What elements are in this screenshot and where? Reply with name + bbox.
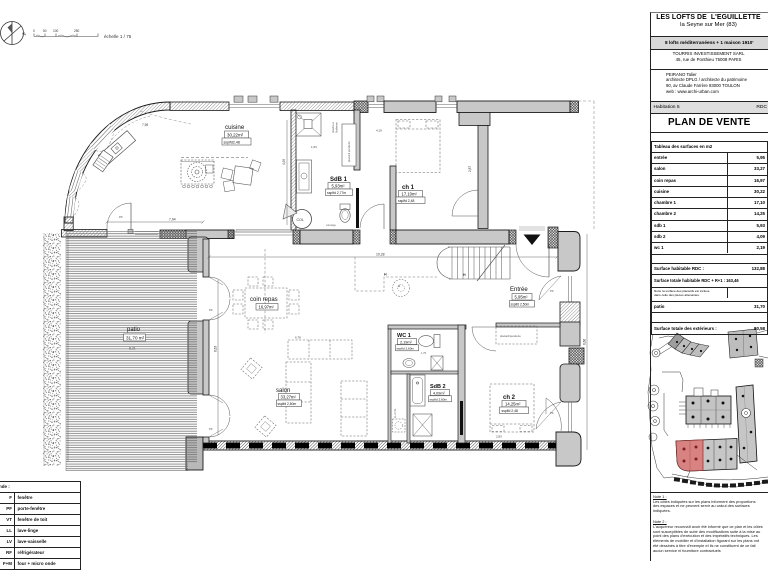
svg-text:100: 100 [53,29,59,33]
svg-text:ssplfd 2,48: ssplfd 2,48 [398,199,415,203]
svg-text:PF: PF [550,289,554,293]
svg-text:14,25m²: 14,25m² [505,402,521,407]
svg-text:H: H [463,273,466,277]
svg-text:PF: PF [550,411,554,415]
svg-text:N: N [22,31,27,37]
svg-text:31,70 m²: 31,70 m² [126,336,145,341]
svg-text:patio: patio [127,327,141,333]
svg-text:cuisine: cuisine [225,124,245,131]
svg-text:LL et SL: LL et SL [393,408,397,418]
svg-text:coin repas: coin repas [250,297,278,303]
svg-text:COL: COL [297,218,304,222]
svg-text:échelle 1 / 75: échelle 1 / 75 [104,34,132,39]
svg-text:carrelage: carrelage [326,224,337,227]
svg-text:ssplfd 2,50m: ssplfd 2,50m [511,303,530,307]
svg-text:0: 0 [33,29,35,33]
svg-text:5,95m²: 5,95m² [515,295,529,300]
svg-text:ssplfd2,48: ssplfd2,48 [224,141,240,145]
svg-text:30,22m²: 30,22m² [227,133,244,138]
svg-text:H: H [384,273,387,277]
svg-text:ssplfd 2,60m: ssplfd 2,60m [278,402,297,406]
svg-text:ssplfd 2,77m: ssplfd 2,77m [327,191,346,195]
svg-text:PF: PF [209,427,213,431]
svg-text:4,19: 4,19 [376,129,382,133]
svg-text:salon: salon [276,388,290,394]
svg-text:ch 1: ch 1 [402,185,415,191]
svg-text:douche à: douche à [331,122,335,133]
svg-text:placard penderie: placard penderie [347,141,351,162]
svg-text:PF: PF [119,215,123,219]
svg-text:7,94: 7,94 [169,218,176,222]
svg-text:SdB 1: SdB 1 [330,177,348,183]
svg-text:6,78: 6,78 [295,336,301,340]
svg-text:ssplfd 2,48: ssplfd 2,48 [502,409,519,413]
svg-text:ssplfd 2,60m: ssplfd 2,60m [397,346,415,350]
svg-text:2,83: 2,83 [496,435,502,439]
svg-text:8,66: 8,66 [583,339,587,345]
svg-text:PF: PF [209,308,213,312]
svg-text:2,87: 2,87 [468,166,472,172]
svg-text:l'italienne: l'italienne [335,122,339,133]
svg-text:33,27m²: 33,27m² [281,395,297,400]
svg-text:SdB 2: SdB 2 [430,384,446,390]
svg-text:8,63: 8,63 [214,346,218,352]
svg-text:10,28: 10,28 [376,253,385,257]
svg-text:1,75: 1,75 [421,351,427,355]
svg-text:17,10m²: 17,10m² [402,192,418,197]
svg-text:WC 1: WC 1 [397,333,411,339]
svg-text:ssplfd 2,60m: ssplfd 2,60m [430,397,448,401]
svg-text:250: 250 [74,29,80,33]
svg-text:4,09m²: 4,09m² [433,391,446,395]
svg-text:50: 50 [43,29,47,33]
svg-text:ch 2: ch 2 [503,395,516,401]
svg-text:1,53: 1,53 [311,145,317,149]
svg-text:7,98: 7,98 [142,123,148,127]
svg-text:16,97m²: 16,97m² [259,305,275,310]
svg-text:4,99: 4,99 [282,159,286,165]
svg-text:placard/penderie: placard/penderie [500,334,521,338]
svg-text:5,93m²: 5,93m² [332,184,346,189]
svg-text:2,19m²: 2,19m² [400,340,413,344]
svg-text:8,21: 8,21 [129,347,136,351]
svg-text:Entrée: Entrée [510,287,528,293]
